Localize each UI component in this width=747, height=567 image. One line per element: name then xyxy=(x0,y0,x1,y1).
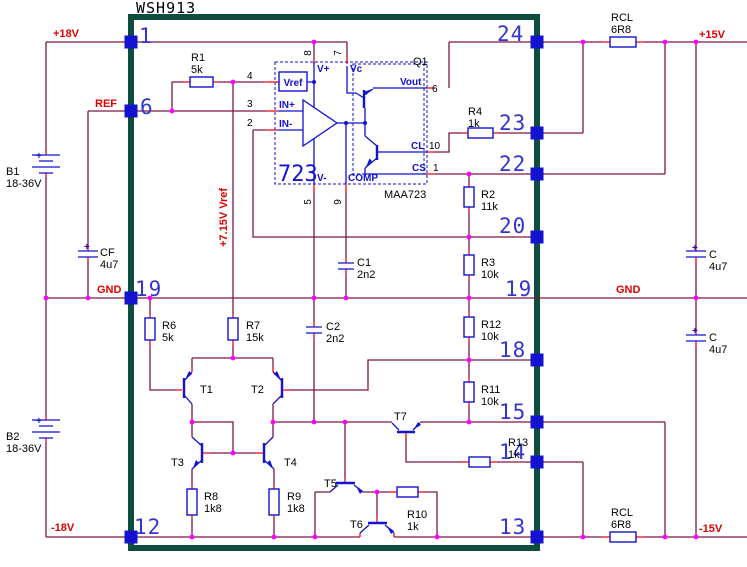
pin-number-13: 13 xyxy=(499,515,526,539)
label-c1-ref: C1 xyxy=(357,257,371,269)
label-r11-value: 10k xyxy=(481,396,499,408)
ic-label-in-plus: IN+ xyxy=(279,100,295,111)
label-c2-ref: C2 xyxy=(326,321,340,333)
label-r11-ref: R11 xyxy=(481,384,500,396)
label-rcl-bottom-ref: RCL xyxy=(611,507,633,519)
pin-number-22: 22 xyxy=(499,152,526,176)
ic-label-in-minus: IN- xyxy=(279,119,292,130)
pin-number-1: 1 xyxy=(139,24,153,48)
label-r10-ref: R10 xyxy=(407,509,427,521)
circuit-schematic: WSH913 1 6 19 12 24 23 22 20 19 18 15 14… xyxy=(0,0,747,567)
net-label-ref: REF xyxy=(95,98,117,110)
label-r7-ref: R7 xyxy=(246,320,260,332)
resistor-r9 xyxy=(269,489,279,515)
label-r6-ref: R6 xyxy=(162,320,176,332)
ic-label-vc: Vc xyxy=(350,64,363,75)
resistor-r11 xyxy=(464,382,474,402)
label-r12-ref: R12 xyxy=(481,319,501,331)
ic-label-cs: CS xyxy=(412,163,426,174)
resistor-r13 xyxy=(469,457,490,467)
ic-label-v-minus: V- xyxy=(317,173,326,184)
label-t4: T4 xyxy=(284,457,297,469)
pin-pad-24 xyxy=(531,36,544,49)
resistor-rcl-bottom xyxy=(610,532,636,542)
label-r1-ref: R1 xyxy=(191,52,205,64)
net-label-vref-rail: +7.15V Vref xyxy=(218,188,230,247)
pin-number-12: 12 xyxy=(134,515,161,539)
label-cf-ref: CF xyxy=(100,247,115,259)
label-r10-value: 1k xyxy=(407,521,419,533)
pin-number-15: 15 xyxy=(499,400,526,424)
label-t1: T1 xyxy=(200,384,213,396)
label-r8-value: 1k8 xyxy=(204,503,222,515)
ic-transistor-bars xyxy=(364,90,377,160)
label-b2-value: 18-36V xyxy=(6,443,42,455)
pin-pad-23 xyxy=(531,127,544,140)
ic-pin-6: 6 xyxy=(432,84,438,95)
label-r9-ref: R9 xyxy=(287,491,301,503)
label-c-bottom-ref: C xyxy=(709,332,717,344)
pin-number-19-left: 19 xyxy=(135,277,162,301)
cf-plus-sign: + xyxy=(84,242,90,253)
net-label-plus18v: +18V xyxy=(53,28,80,40)
pin-number-23: 23 xyxy=(499,111,526,135)
pin-pad-18 xyxy=(531,354,544,367)
label-rcl-bottom-value: 6R8 xyxy=(611,519,631,531)
label-r12-value: 10k xyxy=(481,331,499,343)
ic-junction xyxy=(363,121,367,125)
label-t7: T7 xyxy=(394,411,407,423)
pin-number-19-right: 19 xyxy=(505,277,532,301)
pin-number-18: 18 xyxy=(499,338,526,362)
b2-plus-sign: + xyxy=(36,416,42,427)
label-rcl-top-value: 6R8 xyxy=(611,24,631,36)
ic-pin-3: 3 xyxy=(247,99,253,110)
c-bottom-plus-sign: + xyxy=(692,326,698,337)
ic-label-cl: CL xyxy=(411,141,424,152)
ic-label-vout: Vout xyxy=(400,77,422,88)
label-r4-ref: R4 xyxy=(468,106,482,118)
ic-pin-9: 9 xyxy=(333,199,344,205)
net-label-plus15v: +15V xyxy=(699,29,726,41)
label-cf-value: 4u7 xyxy=(100,259,118,271)
resistor-r2 xyxy=(464,187,474,207)
resistor-r10 xyxy=(397,487,418,497)
label-b1-value: 18-36V xyxy=(6,178,42,190)
pin-number-6: 6 xyxy=(140,95,154,119)
label-t2: T2 xyxy=(251,384,264,396)
ic-pin-7: 7 xyxy=(333,50,344,56)
ic-label-vref: Vref xyxy=(284,78,304,89)
b1-plus-sign: + xyxy=(36,151,42,162)
pin-pad-6 xyxy=(125,105,138,118)
pin-number-20: 20 xyxy=(499,214,526,238)
label-t3: T3 xyxy=(171,457,184,469)
ic-part-number: MAA723 xyxy=(384,189,426,201)
pin-pad-14 xyxy=(531,456,544,469)
label-b2-ref: B2 xyxy=(6,431,19,443)
label-r7-value: 15k xyxy=(246,332,264,344)
label-r1-value: 5k xyxy=(191,64,203,76)
pin-pad-20 xyxy=(531,231,544,244)
label-r4-value: 1k xyxy=(468,118,480,130)
resistor-r1 xyxy=(190,77,213,87)
net-label-gnd-left: GND xyxy=(97,284,122,296)
label-c-top-ref: C xyxy=(709,249,717,261)
label-r13-value: 1k xyxy=(508,449,520,461)
ic-pin-2: 2 xyxy=(247,118,253,129)
pin-pad-13 xyxy=(531,531,544,544)
label-c2-value: 2n2 xyxy=(326,333,344,345)
ic-pin-1: 1 xyxy=(433,163,439,174)
q1-label: Q1 xyxy=(413,56,428,68)
resistor-r6 xyxy=(145,318,155,340)
label-r6-value: 5k xyxy=(162,332,174,344)
net-label-minus15v: -15V xyxy=(699,523,723,535)
resistor-bodies xyxy=(145,37,636,542)
label-t5: T5 xyxy=(324,478,337,490)
label-r2-value: 11k xyxy=(481,201,498,213)
label-r3-ref: R3 xyxy=(481,257,495,269)
schematic-title: WSH913 xyxy=(136,0,196,17)
label-r8-ref: R8 xyxy=(204,491,218,503)
pin-pad-15 xyxy=(531,416,544,429)
ic-junction xyxy=(312,80,316,84)
label-rcl-top-ref: RCL xyxy=(611,12,633,24)
net-label-gnd-right: GND xyxy=(616,284,641,296)
ic-pin-10: 10 xyxy=(429,141,441,152)
label-r13-ref: R13 xyxy=(508,437,528,449)
label-r3-value: 10k xyxy=(481,269,499,281)
net-label-minus18v: -18V xyxy=(51,522,75,534)
pin-number-24: 24 xyxy=(497,22,524,46)
resistor-r8 xyxy=(187,489,197,515)
resistor-r12 xyxy=(464,317,474,337)
schematic-canvas: WSH913 1 6 19 12 24 23 22 20 19 18 15 14… xyxy=(0,0,747,567)
ic-pin-8: 8 xyxy=(303,50,314,56)
label-r2-ref: R2 xyxy=(481,189,495,201)
ic-label-v-plus: V+ xyxy=(317,64,330,75)
label-c-top-value: 4u7 xyxy=(709,261,727,273)
label-b1-ref: B1 xyxy=(6,166,19,178)
label-c1-value: 2n2 xyxy=(357,269,375,281)
ic-name: 723 xyxy=(278,162,318,187)
error-amp-symbol xyxy=(303,100,337,146)
ic-label-comp: COMP xyxy=(348,173,378,184)
c-top-plus-sign: + xyxy=(692,243,698,254)
label-c-bottom-value: 4u7 xyxy=(709,344,727,356)
ic-pin-4: 4 xyxy=(247,71,253,82)
pin-pad-1 xyxy=(125,36,138,49)
resistor-rcl-top xyxy=(610,37,636,47)
label-t6: T6 xyxy=(350,519,363,531)
ic-junction xyxy=(344,121,348,125)
ic-pin-5: 5 xyxy=(303,199,314,205)
label-r9-value: 1k8 xyxy=(287,503,305,515)
resistor-r3 xyxy=(464,255,474,275)
resistor-r7 xyxy=(228,318,238,340)
pin-pad-22 xyxy=(531,168,544,181)
